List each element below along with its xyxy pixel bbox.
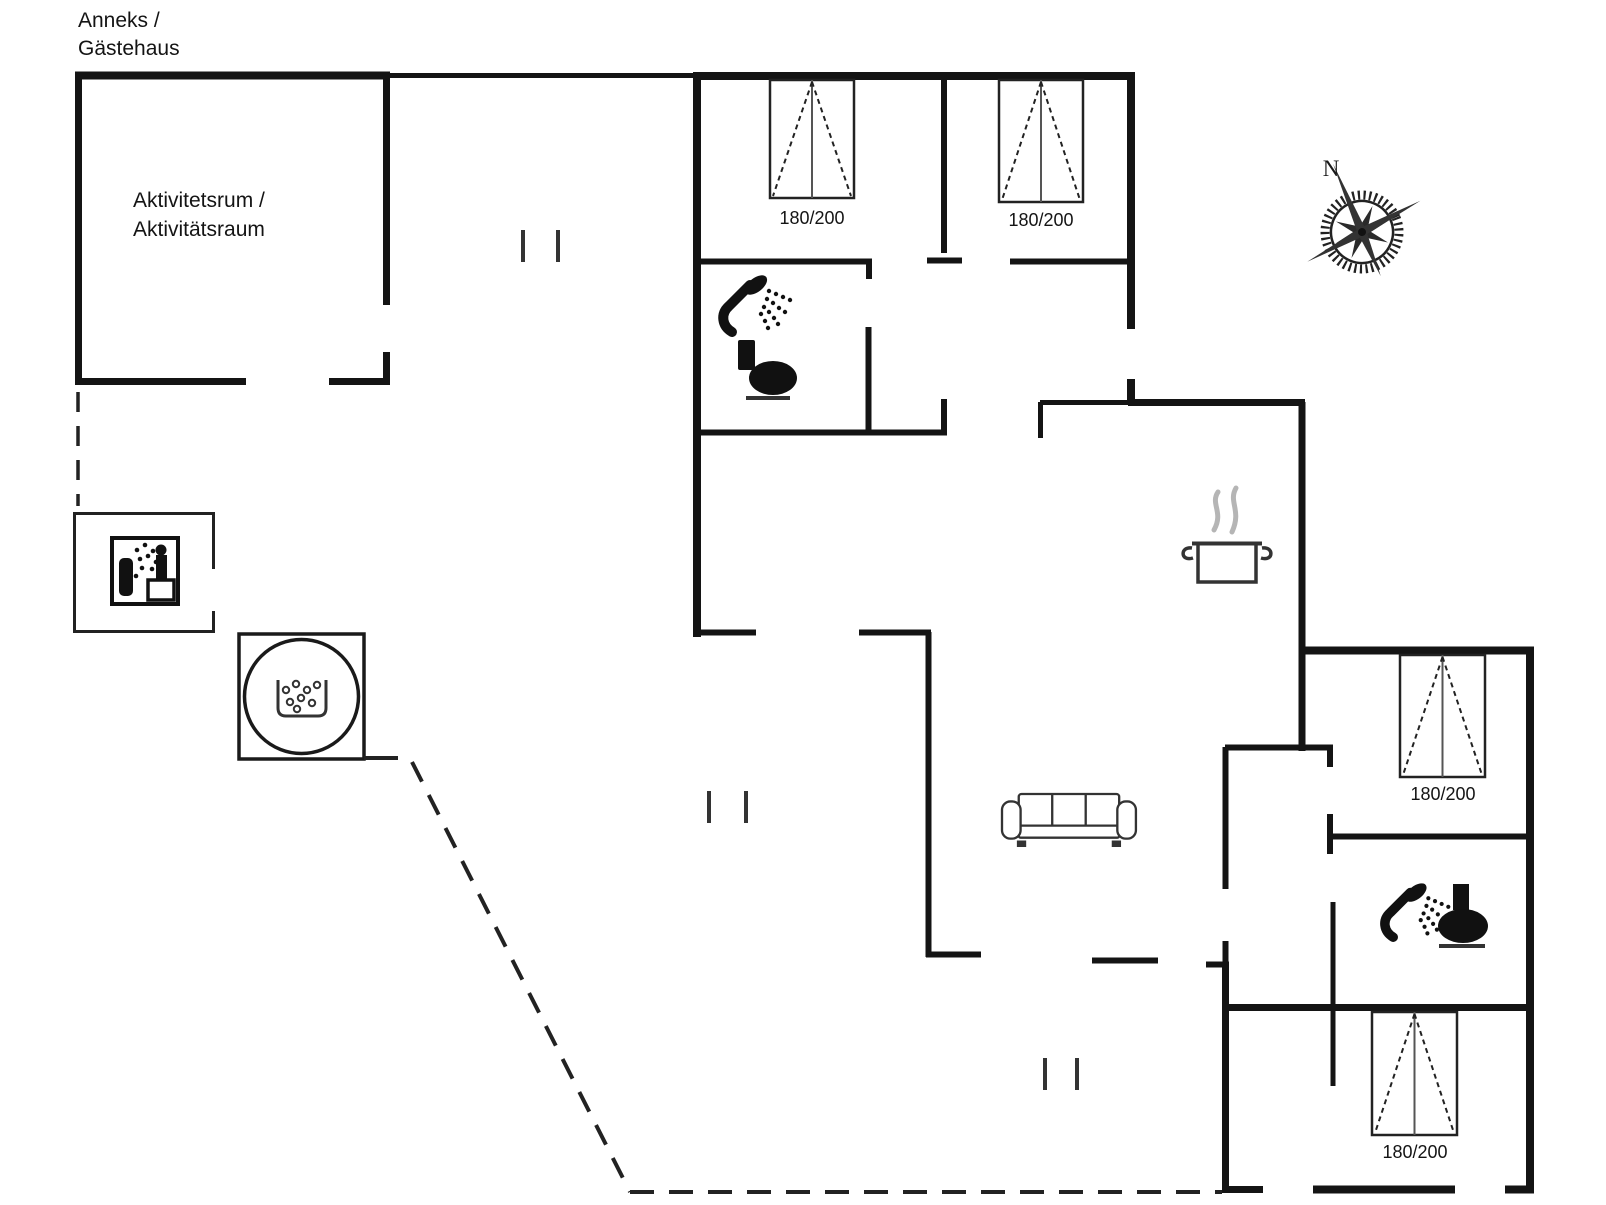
double-bed-3: 180/200	[1400, 655, 1485, 804]
bed-size-label: 180/200	[1382, 1142, 1447, 1162]
double-bed-2: 180/200	[999, 80, 1083, 230]
double-bed-4: 180/200	[1372, 1012, 1457, 1162]
toilet-icon	[1438, 884, 1488, 948]
activity-room-line2: Aktivitätsraum	[133, 218, 265, 241]
annex-title-line1: Anneks /	[78, 9, 160, 32]
post-marker-terrace-bottom	[1045, 1058, 1077, 1090]
activity-room-line1: Aktivitetsrum /	[133, 189, 265, 212]
terrace-dashed-boundary	[78, 392, 1222, 1192]
bed-size-label: 180/200	[1410, 784, 1475, 804]
activity-room-label: Aktivitetsrum / Aktivitätsraum	[133, 189, 265, 241]
sofa-icon	[1002, 794, 1136, 847]
double-bed-1: 180/200	[770, 80, 854, 228]
annex-title-line2: Gästehaus	[78, 37, 180, 60]
north-label: N	[1323, 156, 1340, 181]
compass-rose	[1276, 138, 1441, 300]
hot-tub-icon	[239, 634, 364, 759]
toilet-icon	[738, 340, 797, 400]
kitchen-pot-icon	[1183, 488, 1271, 582]
shower-icon	[723, 271, 792, 332]
annex-title: Anneks / Gästehaus	[78, 9, 180, 60]
post-marker-terrace-left	[709, 791, 746, 823]
post-marker-breezeway	[523, 230, 558, 262]
sauna-icon	[112, 538, 178, 604]
bed-size-label: 180/200	[779, 208, 844, 228]
bed-size-label: 180/200	[1008, 210, 1073, 230]
floor-plan: 180/200 180/200 180/200 180/200	[0, 0, 1606, 1205]
